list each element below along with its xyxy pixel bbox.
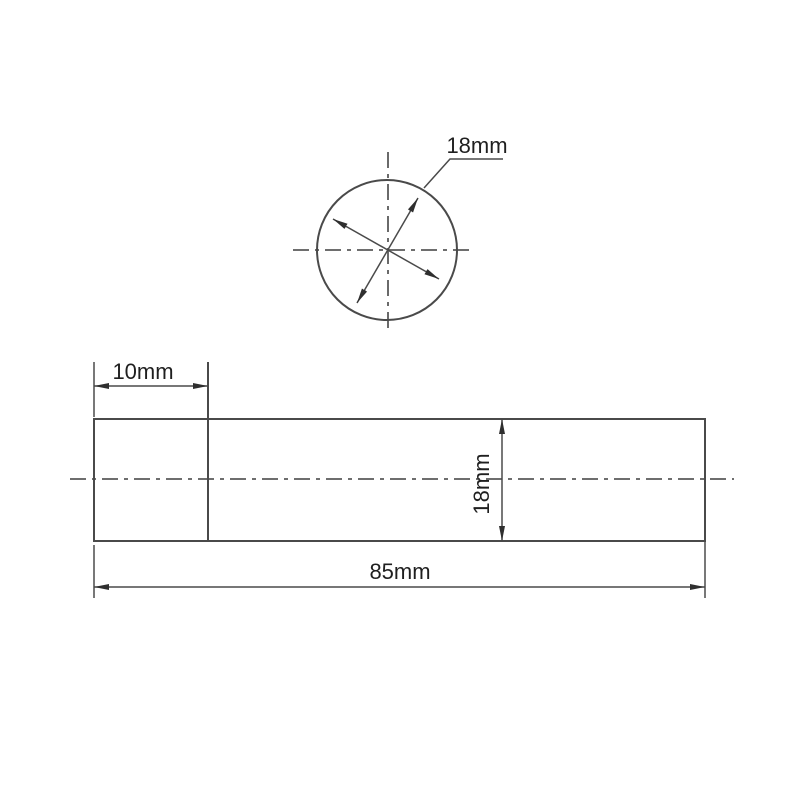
drawing-svg: 18mm 10mm 18mm 85mm <box>0 0 800 800</box>
height-label: 18mm <box>469 453 494 514</box>
diameter-leader-line <box>424 159 503 188</box>
step-length-label: 10mm <box>112 359 173 384</box>
end-view: 18mm <box>293 133 508 333</box>
diameter-label: 18mm <box>446 133 507 158</box>
rod-body-outline <box>94 419 705 541</box>
side-view: 10mm 18mm 85mm <box>70 359 734 598</box>
technical-drawing-canvas: 18mm 10mm 18mm 85mm <box>0 0 800 800</box>
diameter-arrow-se <box>333 219 439 279</box>
total-length-label: 85mm <box>369 559 430 584</box>
